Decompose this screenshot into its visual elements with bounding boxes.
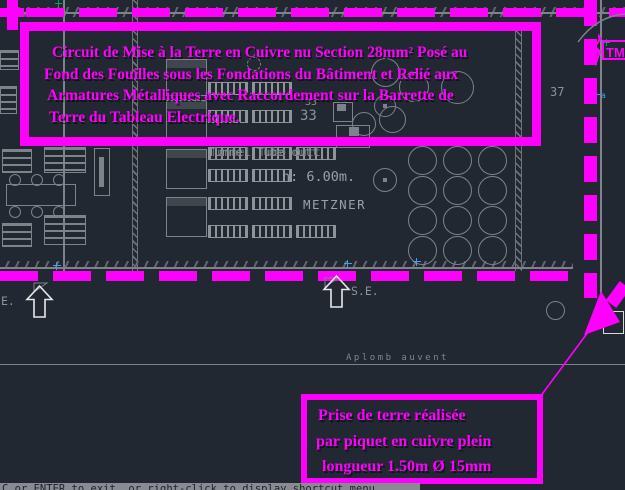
round-table — [408, 206, 437, 235]
ground-circuit-dashed-top[interactable] — [26, 8, 625, 17]
machine-brand-label: METZNER — [303, 197, 366, 212]
level-tag-circle — [546, 301, 565, 320]
grounding-note-line: Armatures Métalliques avec Raccordement … — [47, 85, 532, 107]
conveyor — [296, 225, 336, 238]
round-table — [478, 206, 507, 235]
bench — [0, 86, 17, 114]
grip-marker — [55, 0, 62, 7]
chair — [9, 174, 21, 186]
south-wall-line — [0, 267, 573, 269]
machine-unit — [166, 149, 207, 189]
round-table — [478, 146, 507, 175]
conveyor — [252, 225, 292, 238]
earth-rod-note-line: longueur 1.50m Ø 15mm — [322, 454, 537, 480]
grounding-note-line: Fond des Fouilles sous les Fondations du… — [44, 64, 532, 86]
conveyor — [208, 169, 248, 182]
canopy-line — [0, 364, 625, 365]
round-table — [443, 146, 472, 175]
ground-circuit-dashed-right[interactable] — [584, 0, 597, 298]
exit-label: S.E. — [351, 284, 379, 298]
tunnel-overlay-label: Tunnel Tube cutting — [208, 145, 320, 159]
round-table — [443, 206, 472, 235]
snap-marker — [53, 262, 61, 270]
conveyor — [252, 197, 292, 210]
bench — [0, 50, 19, 70]
bench — [44, 215, 86, 245]
conveyor — [208, 197, 248, 210]
bench — [2, 223, 32, 247]
cabinet-door — [99, 157, 104, 187]
round-table — [443, 236, 472, 265]
flag-symbol — [34, 283, 47, 292]
round-table — [478, 236, 507, 265]
canopy-label: Aplomb auvent — [346, 353, 449, 363]
snap-marker — [413, 258, 421, 266]
ground-circuit-dashed-middle[interactable] — [0, 271, 572, 281]
work-table — [6, 184, 76, 206]
grounding-note-line: Terre du Tableau Electrique. — [49, 107, 532, 129]
earth-rod-arrow-tail[interactable] — [611, 285, 625, 304]
round-table — [443, 176, 472, 205]
bench — [2, 149, 32, 173]
bench — [44, 147, 86, 173]
ground-circuit-corner-h[interactable] — [0, 8, 24, 17]
grounding-note-box[interactable]: Circuit de Mise à la Terre en Cuivre nu … — [20, 22, 541, 146]
command-prompt-strip: C or ENTER to exit, or right-click to di… — [0, 483, 420, 490]
snap-marker — [344, 260, 352, 268]
ceiling-height-label: h: 6.00m. — [282, 169, 355, 185]
chair — [31, 206, 43, 218]
node-marker-label: a — [601, 91, 606, 100]
fan-center — [383, 178, 387, 182]
earth-rod-note-line: Prise de terre réalisée — [318, 403, 537, 429]
round-table — [408, 146, 437, 175]
chair — [53, 206, 65, 218]
tm-tag-label: TM — [604, 45, 625, 60]
round-table — [478, 176, 507, 205]
detail-box — [603, 311, 624, 334]
tm-tag[interactable]: TM — [602, 40, 625, 60]
machine-unit — [166, 197, 207, 237]
conveyor — [208, 225, 248, 238]
cad-viewport[interactable]: 33 33 37 h: 6.00m. METZNER Tunnel Tube c… — [0, 0, 625, 490]
chair — [31, 174, 43, 186]
round-table — [408, 176, 437, 205]
grounding-note-line: Circuit de Mise à la Terre en Cuivre nu … — [52, 42, 532, 64]
exit-label-clipped: E. — [1, 294, 15, 308]
earth-rod-note-line: par piquet en cuivre plein — [316, 429, 537, 455]
chair — [53, 174, 65, 186]
command-prompt-message: C or ENTER to exit, or right-click to di… — [0, 483, 420, 490]
room-number-label: 37 — [550, 85, 564, 99]
exit-up-arrow-icon[interactable] — [27, 286, 52, 317]
chair — [9, 206, 21, 218]
earth-rod-note-box[interactable]: Prise de terre réalisée par piquet en cu… — [301, 394, 543, 484]
earth-rod-leader-line[interactable] — [540, 320, 597, 397]
